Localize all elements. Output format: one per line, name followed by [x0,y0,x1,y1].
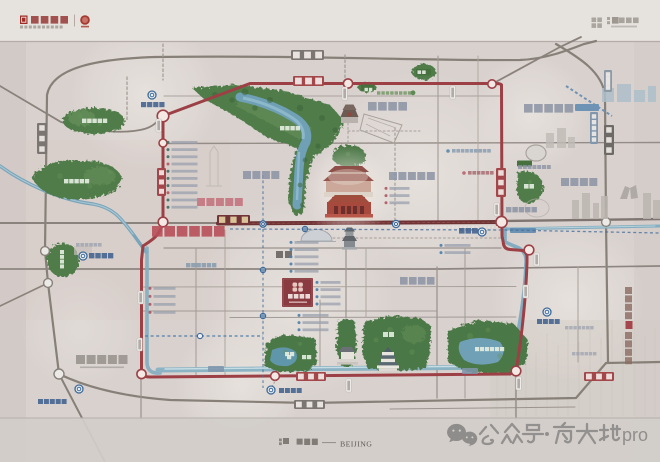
svg-text:pro: pro [622,425,648,445]
svg-text:BEIJING: BEIJING [340,440,372,449]
